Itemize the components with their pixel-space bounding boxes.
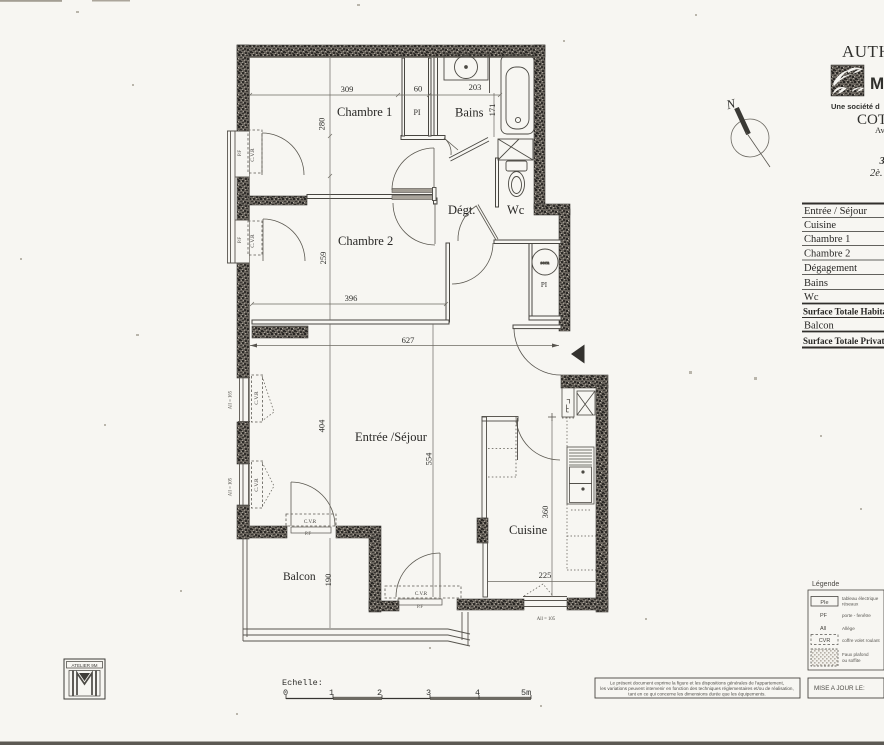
svg-text:203: 203 xyxy=(469,82,482,92)
svg-text:coffre volet roulant: coffre volet roulant xyxy=(842,638,880,643)
svg-text:36: 36 xyxy=(879,156,884,167)
svg-text:P.F: P.F xyxy=(238,150,243,156)
svg-text:Cuisine: Cuisine xyxy=(509,523,548,537)
svg-text:PI: PI xyxy=(413,108,420,117)
svg-text:ou soffite: ou soffite xyxy=(842,658,861,663)
svg-text:554: 554 xyxy=(424,452,434,466)
svg-text:Balcon: Balcon xyxy=(804,321,834,332)
svg-text:réseaux: réseaux xyxy=(842,602,859,607)
svg-text:Légende: Légende xyxy=(812,581,839,588)
svg-text:Faux plafond: Faux plafond xyxy=(842,652,869,657)
svg-text:P.F: P.F xyxy=(238,237,243,243)
svg-text:Entrée /Séjour: Entrée /Séjour xyxy=(355,430,428,444)
svg-text:Chambre 1: Chambre 1 xyxy=(804,234,850,245)
svg-text:171: 171 xyxy=(487,104,497,117)
svg-text:Cuisine: Cuisine xyxy=(804,220,836,231)
svg-text:tableau électrique: tableau électrique xyxy=(842,596,879,601)
svg-text:627: 627 xyxy=(402,335,415,345)
svg-text:Le présent document exprime la: Le présent document exprime la figure et… xyxy=(610,681,784,686)
svg-text:Chambre 2: Chambre 2 xyxy=(804,249,850,260)
svg-text:seca: seca xyxy=(541,260,550,265)
svg-text:Wc: Wc xyxy=(507,203,525,217)
svg-text:Wc: Wc xyxy=(804,292,819,303)
svg-text:PF: PF xyxy=(820,613,828,619)
svg-text:M: M xyxy=(870,74,884,93)
svg-text:Bains: Bains xyxy=(455,106,484,120)
svg-text:259: 259 xyxy=(318,252,328,265)
svg-text:Bains: Bains xyxy=(804,278,828,289)
svg-text:190: 190 xyxy=(323,574,333,587)
svg-text:All = 105: All = 105 xyxy=(537,617,556,622)
svg-text:All: All xyxy=(820,626,826,632)
svg-text:C.V.R: C.V.R xyxy=(254,478,260,492)
svg-text:2è.: 2è. xyxy=(870,168,883,179)
svg-text:60: 60 xyxy=(414,84,423,94)
svg-text:porte - fenêtre: porte - fenêtre xyxy=(842,613,871,618)
svg-text:Surface Totale Habitab: Surface Totale Habitab xyxy=(803,307,884,317)
svg-text:Chambre 1: Chambre 1 xyxy=(337,105,392,119)
svg-text:Entrée / Séjour: Entrée / Séjour xyxy=(804,206,867,217)
svg-text:Surface Totale Privativ: Surface Totale Privativ xyxy=(803,336,884,346)
svg-text:Av: Av xyxy=(875,125,884,135)
svg-text:C.V.R: C.V.R xyxy=(254,391,260,405)
svg-text:309: 309 xyxy=(341,84,354,94)
svg-text:P.F: P.F xyxy=(417,605,423,610)
svg-text:Dégt.: Dégt. xyxy=(448,203,475,217)
svg-text:PIe: PIe xyxy=(820,600,828,606)
svg-text:5m: 5m xyxy=(521,688,531,698)
svg-text:All = 165: All = 165 xyxy=(229,390,234,409)
svg-text:Allège: Allège xyxy=(842,626,855,631)
svg-text:225: 225 xyxy=(539,570,552,580)
svg-text:PI: PI xyxy=(541,281,548,289)
svg-text:All = 105: All = 105 xyxy=(229,477,234,496)
svg-text:280: 280 xyxy=(317,118,327,131)
svg-text:C.V.R: C.V.R xyxy=(250,148,256,162)
svg-text:Chambre 2: Chambre 2 xyxy=(338,234,393,248)
svg-text:C.V.R: C.V.R xyxy=(415,592,428,597)
svg-text:2: 2 xyxy=(377,688,382,698)
svg-text:Une société d: Une société d xyxy=(831,102,880,111)
svg-text:CVR: CVR xyxy=(819,638,831,644)
svg-text:396: 396 xyxy=(345,293,358,303)
svg-text:MISE A JOUR LE:: MISE A JOUR LE: xyxy=(814,685,865,692)
svg-text:C.V.R: C.V.R xyxy=(304,520,317,525)
svg-text:C.V.R: C.V.R xyxy=(250,234,256,248)
svg-text:360: 360 xyxy=(540,506,550,519)
svg-text:ATELIER 9M: ATELIER 9M xyxy=(72,663,98,668)
svg-text:tant en ce qui concerne les di: tant en ce qui concerne les dimensions d… xyxy=(628,692,765,697)
svg-text:Balcon: Balcon xyxy=(283,571,316,583)
svg-text:AUTHE: AUTHE xyxy=(842,42,884,61)
svg-text:404: 404 xyxy=(317,419,327,433)
svg-text:les variations peuvent interve: les variations peuvent intervenir en fon… xyxy=(600,686,794,691)
svg-text:Dégagement: Dégagement xyxy=(804,263,857,274)
svg-text:0: 0 xyxy=(283,688,288,698)
svg-text:Echelle:: Echelle: xyxy=(282,678,323,688)
